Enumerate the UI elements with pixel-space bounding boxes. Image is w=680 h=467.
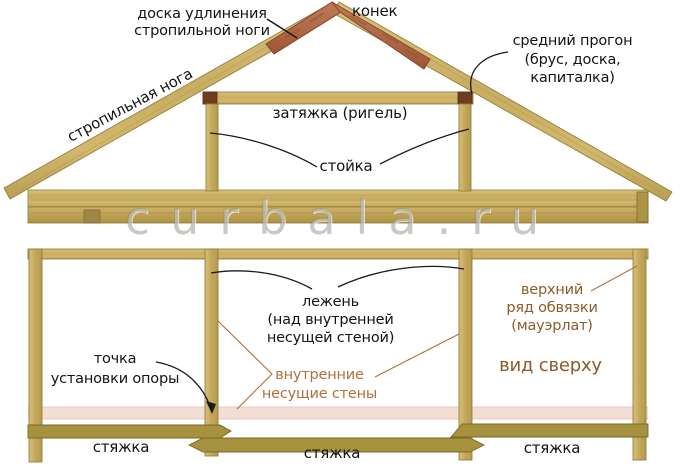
- truss-post-left: [206, 104, 218, 191]
- beam-end-block-left: [84, 210, 100, 223]
- strapping-top-beam: [28, 249, 648, 259]
- label-tie-center: стяжка: [292, 445, 372, 462]
- tie-board-left: [28, 425, 231, 438]
- watermark: curbala.ru: [112, 192, 572, 244]
- label-view-caption: вид сверху: [493, 358, 608, 375]
- label-top-strapping: верхний ряд обвязки (мауэрлат): [492, 281, 612, 335]
- label-ridge: конек: [352, 3, 412, 20]
- rafter-extension-board-left: [266, 2, 341, 54]
- tie-board-right: [451, 424, 648, 437]
- label-support-point: точка установки опоры: [48, 350, 182, 389]
- tie-beam: [203, 92, 473, 104]
- truss-post-right: [459, 104, 471, 191]
- sleeper-pointer-left: [211, 271, 312, 289]
- purlin-block-right: [458, 92, 472, 104]
- sleeper-pointer-right: [338, 266, 464, 287]
- diagram-canvas: curbala.ru доска удлинения стропильной н…: [0, 0, 680, 467]
- label-tie-beam: затяжка (ригель): [272, 105, 408, 122]
- beam-end-block-right: [637, 192, 648, 222]
- label-middle-purlin: средний прогон (брус, доска, капиталка): [505, 32, 640, 88]
- label-internal-walls: внутренние несущие стены: [247, 366, 392, 403]
- purlin-block-left: [203, 92, 217, 104]
- label-tie-right: стяжка: [512, 440, 592, 457]
- internal-wall-band: [28, 407, 648, 419]
- label-tie-left: стяжка: [81, 439, 161, 456]
- label-sleeper: лежень (над внутренней несущей стеной): [258, 293, 403, 347]
- label-extension-board: доска удлинения стропильной ноги: [128, 6, 276, 39]
- label-post: стойка: [296, 158, 396, 175]
